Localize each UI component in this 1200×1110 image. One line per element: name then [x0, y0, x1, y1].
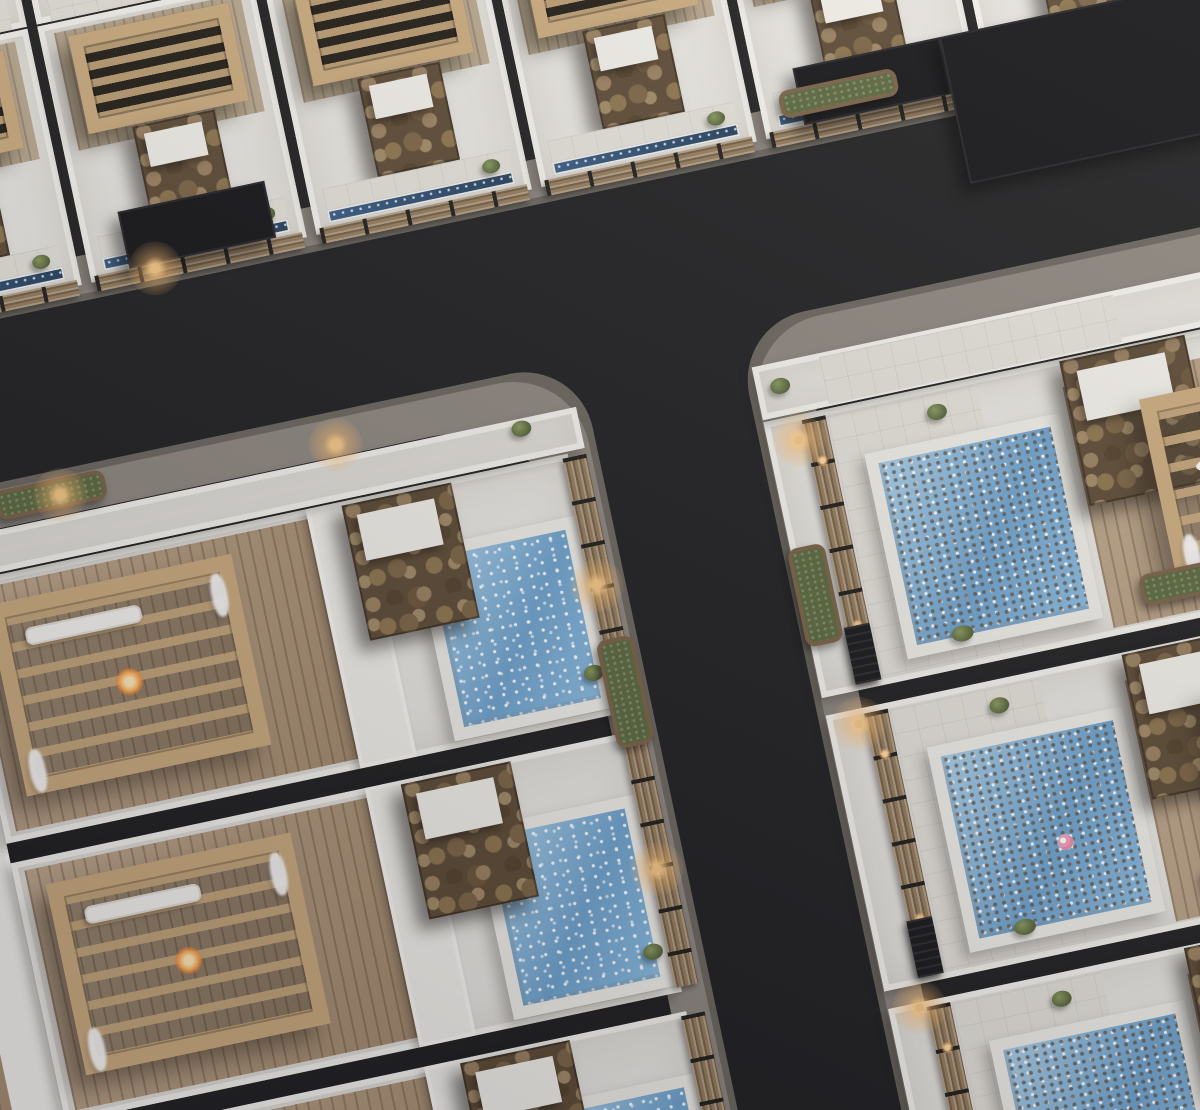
swimming-pool [926, 706, 1165, 953]
aerial-villa-render: Aerial dusk render of a modern white-vil… [0, 0, 1200, 1110]
street-lamp [793, 434, 805, 446]
street-lamp [913, 1002, 925, 1014]
street-lamp [591, 580, 603, 592]
site-plan [0, 0, 1200, 1110]
street-lamp [651, 863, 663, 875]
swimming-pool [864, 412, 1103, 659]
street-lamp [330, 439, 342, 451]
street-lamp [853, 718, 865, 730]
street-lamp [149, 262, 161, 274]
street-lamp [54, 489, 66, 501]
